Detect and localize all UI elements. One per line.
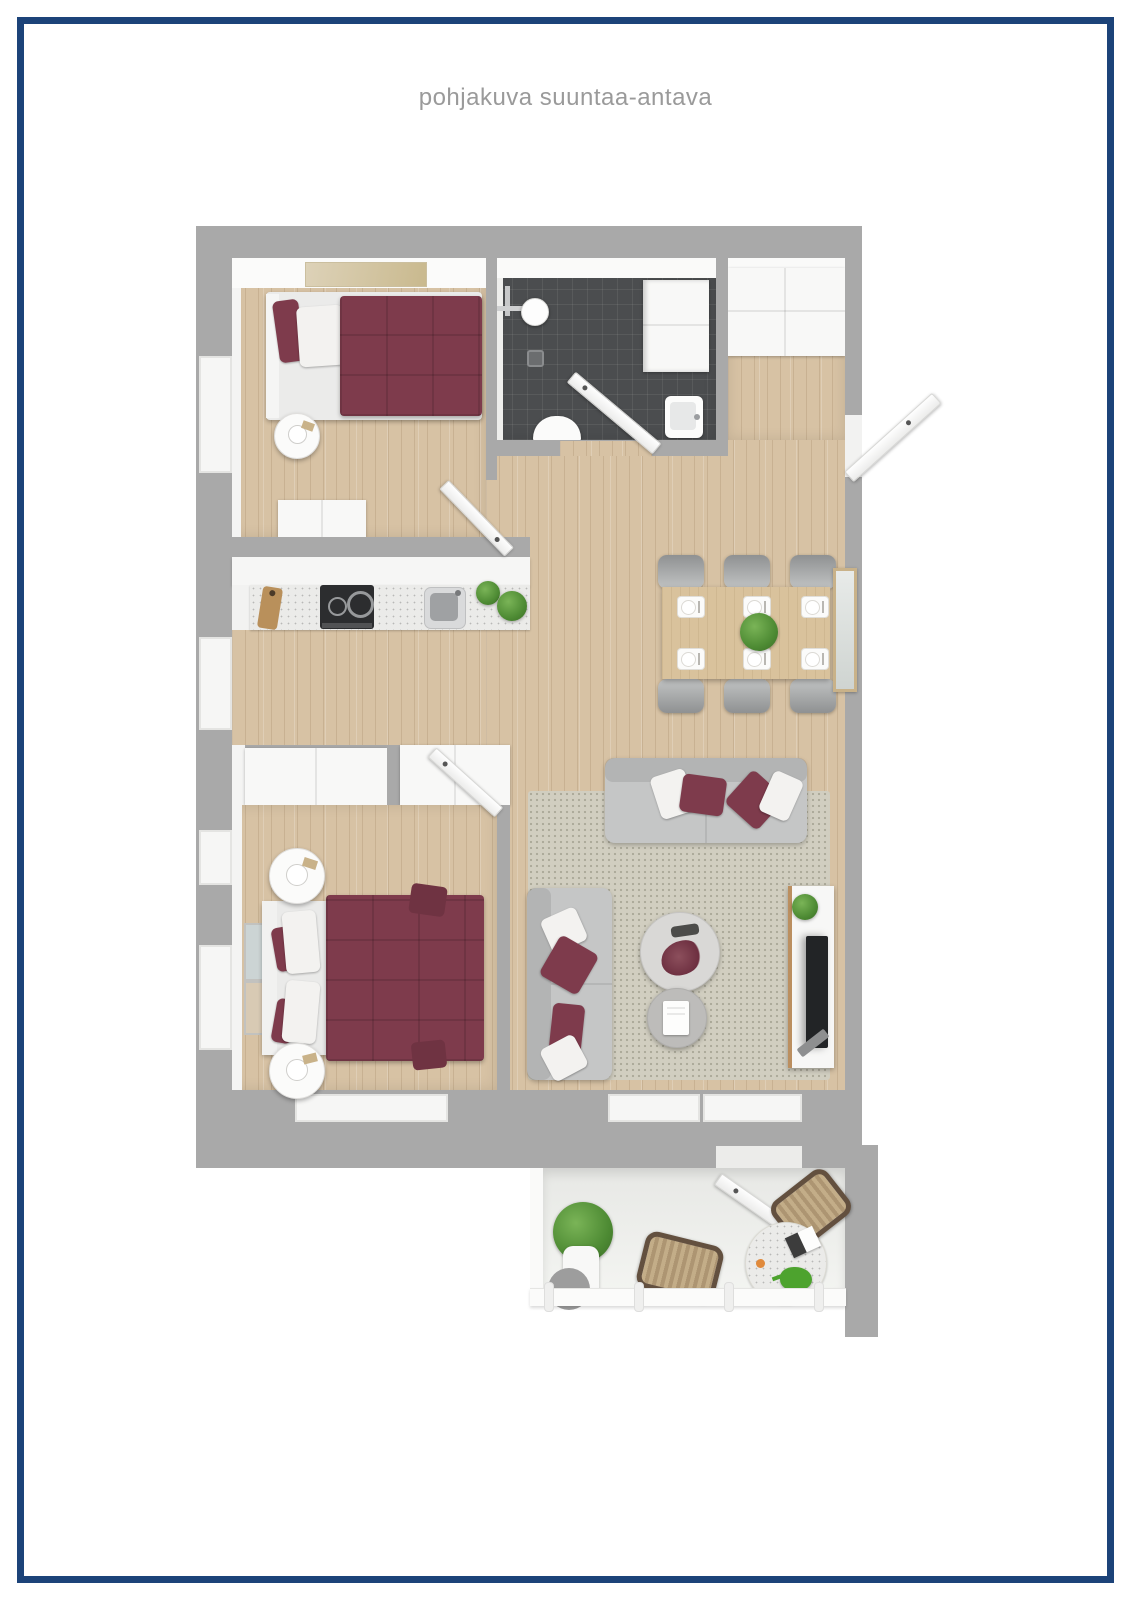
window: [199, 830, 232, 885]
wall-art: [306, 263, 426, 286]
dining-chair: [724, 679, 770, 713]
dining-chair: [658, 555, 704, 589]
bed-pillow: [281, 910, 320, 975]
bed-pillow: [281, 980, 320, 1045]
washing-machine: [643, 280, 709, 372]
window: [703, 1094, 802, 1122]
window: [608, 1094, 700, 1122]
place-setting: [802, 649, 828, 669]
door-handle: [494, 536, 501, 543]
bathroom-sink: [665, 396, 703, 438]
balcony-west-post: [530, 1168, 543, 1290]
dining-chair: [658, 679, 704, 713]
duvet: [340, 296, 482, 416]
throw-pillow: [679, 773, 728, 817]
bedroom-1-east-wall: [486, 258, 497, 480]
dining-set: [650, 555, 850, 715]
dining-chair: [790, 679, 836, 713]
balcony: [530, 1168, 878, 1337]
floor-plan: [0, 0, 1131, 1600]
bedroom-2-west-wall-top: [232, 745, 245, 805]
window: [199, 945, 232, 1050]
floor-drain: [527, 350, 544, 367]
entry-wardrobe: [728, 268, 845, 356]
herb-plant: [476, 581, 500, 605]
balcony-railing: [530, 1288, 846, 1306]
magazine-cover: [785, 1232, 807, 1258]
railing-post: [724, 1282, 734, 1312]
balcony-door-opening: [716, 1146, 802, 1168]
wardrobe-seam: [728, 310, 845, 312]
page: pohjakuva suuntaa-antava: [0, 0, 1131, 1600]
table-lamp: [286, 864, 308, 886]
bedroom-2-wardrobe: [245, 748, 387, 805]
wall-stub: [387, 745, 400, 808]
kitchen-side-panel: [232, 585, 250, 630]
door-handle: [732, 1187, 739, 1194]
console-wood-edge: [788, 886, 792, 1068]
tv-console: [788, 886, 834, 1068]
bedroom-1-south-wall: [232, 537, 530, 557]
wardrobe-seam: [315, 748, 317, 805]
shower-riser: [505, 286, 510, 316]
duvet-flap: [408, 883, 448, 918]
duvet: [326, 895, 484, 1061]
place-setting: [744, 649, 770, 669]
sofa: [605, 758, 807, 843]
wardrobe-seam: [784, 268, 786, 356]
entry-hall: [728, 258, 845, 440]
dining-chair: [790, 555, 836, 589]
dining-table: [662, 587, 830, 679]
railing-post: [544, 1282, 554, 1312]
console-plant: [792, 894, 818, 920]
coffee-table: [640, 912, 720, 992]
herb-plant: [497, 591, 527, 621]
nightstand: [274, 413, 320, 459]
kitchen-counter: [250, 585, 530, 630]
magazine: [663, 1001, 689, 1035]
cooktop: [320, 585, 374, 629]
leaning-mirror: [833, 568, 857, 692]
dining-chair: [724, 555, 770, 589]
shower-head: [521, 298, 549, 326]
door-handle: [581, 384, 588, 391]
nightstand: [269, 848, 325, 904]
book: [302, 1052, 318, 1064]
cutting-board: [257, 586, 283, 631]
window: [295, 1094, 448, 1122]
flower-bouquet: [658, 938, 703, 978]
toilet: [533, 416, 581, 440]
railing-post: [634, 1282, 644, 1312]
sink-bowl: [430, 593, 458, 621]
nightstand: [269, 1043, 325, 1099]
board-handle: [269, 590, 276, 597]
kitchen-tap: [455, 590, 461, 596]
place-setting: [678, 597, 704, 617]
bathroom-door-opening: [560, 441, 652, 456]
bedroom-2-west-wall-face: [232, 805, 242, 1090]
bedroom-1-west-wall-face: [232, 288, 241, 537]
cooktop-edge: [322, 623, 372, 628]
hall-north-wall-face: [728, 258, 845, 268]
burner: [347, 591, 374, 618]
window: [199, 637, 232, 730]
burner: [328, 597, 347, 616]
bed-pillow: [296, 304, 346, 367]
bedroom-2-east-wall: [497, 805, 510, 1090]
can-spout: [772, 1273, 787, 1282]
kitchen-floor: [232, 630, 486, 745]
sink-basin: [670, 402, 696, 430]
door-handle: [442, 760, 449, 767]
door-handle: [905, 419, 912, 426]
bathroom-north-wall-face: [497, 258, 716, 278]
duvet-flap: [411, 1039, 448, 1070]
double-bed: [262, 895, 484, 1061]
side-table: [647, 988, 707, 1048]
dresser-seam: [321, 500, 323, 537]
sink-tap: [694, 414, 700, 420]
table-centerpiece-plant: [740, 613, 778, 651]
table-tray: [670, 923, 699, 938]
place-setting: [802, 597, 828, 617]
shower-arm: [497, 306, 523, 311]
balcony-east-wall: [845, 1145, 878, 1337]
dresser: [278, 500, 366, 537]
single-bed: [266, 292, 482, 420]
bathroom-west-wall-face: [497, 278, 503, 440]
fruit: [756, 1259, 765, 1268]
sofa: [527, 888, 612, 1080]
place-setting: [678, 649, 704, 669]
washer-seam: [643, 324, 709, 326]
kitchen-sink: [424, 587, 466, 629]
railing-post: [814, 1282, 824, 1312]
magazine-lines: [667, 1007, 685, 1009]
window: [199, 356, 232, 473]
magazine-lines: [667, 1013, 685, 1015]
